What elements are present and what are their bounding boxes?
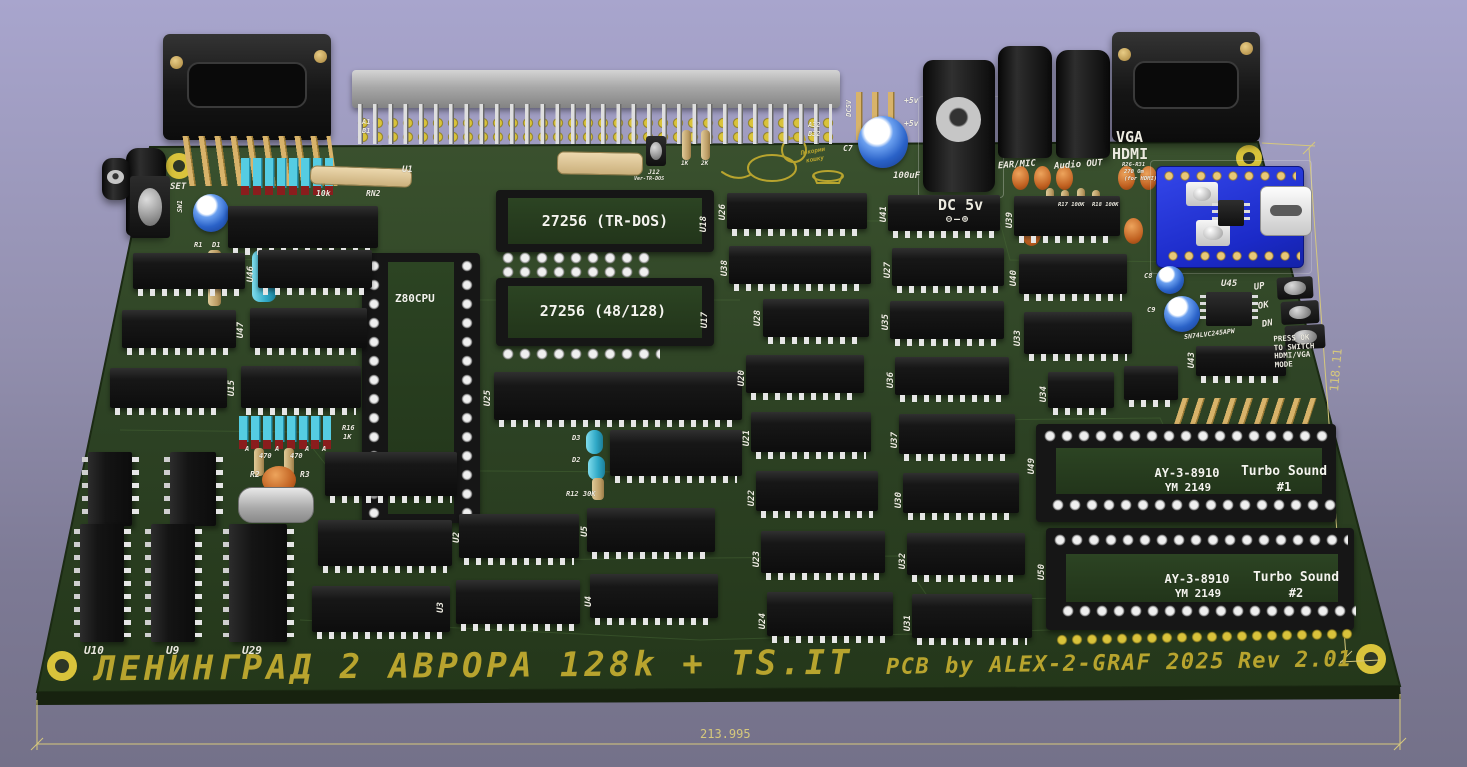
capacitor-c7 [858, 116, 908, 168]
plus5v-label: +5v [904, 96, 918, 105]
dip-chip-u29 [229, 524, 287, 642]
resistor-network-rn2 [310, 165, 413, 188]
pad-a-label: A [322, 445, 326, 453]
resistor-1k [682, 130, 691, 160]
c7-ref-label: C7 [843, 144, 853, 153]
j12-note-label: Ver-TR-DOS [634, 176, 664, 182]
dip-chip [122, 310, 236, 348]
r17-label: R17 100K [1058, 202, 1085, 208]
u41-ref-label: U41 [879, 206, 889, 222]
u49-ref-label: U49 [1027, 458, 1037, 474]
ok-label: OK [1257, 300, 1269, 312]
r2-label: R2 [250, 470, 260, 479]
u23-ref-label: U23 [752, 551, 762, 567]
z80-socket-pins [459, 258, 476, 518]
set-label: SET [170, 182, 186, 192]
mode-switch-note: PRESS OK TO SWITCH HDMI/VGA MODE [1273, 333, 1329, 370]
socket-pin-row [500, 264, 650, 278]
orange-capacitor [1034, 166, 1051, 190]
pad-a-label: A [305, 445, 309, 453]
vga-hex-nut [1240, 42, 1253, 55]
dip-chip [250, 308, 367, 348]
dip-chip [590, 574, 718, 618]
dip-chip-u5 [587, 508, 715, 552]
edge-label-a32: A32 [808, 121, 821, 129]
z80cpu-label: Z80CPU [395, 292, 435, 305]
edge-label-b1: B1 [362, 127, 370, 135]
dip-chip-u35 [890, 301, 1004, 339]
dip-chip-vertical [88, 452, 132, 526]
dc5v-jack-label: DC 5v [938, 196, 983, 214]
dn-label: DN [1261, 318, 1273, 330]
turbo-sound-1-label: Turbo Sound [1236, 464, 1332, 479]
u30-ref-label: U30 [894, 492, 904, 508]
dip-chip-u2 [318, 520, 452, 566]
u38-ref-label: U38 [720, 260, 730, 276]
module-pads [1166, 249, 1300, 264]
dip-chip-u38 [729, 246, 871, 284]
diode-d3 [586, 430, 603, 454]
rom2-label: 27256 (48/128) [503, 302, 703, 320]
vga-note-1: R26-R31 [1122, 162, 1145, 168]
r-2k-label: 2K [701, 160, 708, 167]
u33-ref-label: U33 [1013, 330, 1023, 346]
u22-ref-label: U22 [747, 490, 757, 506]
d2-label: D2 [572, 456, 580, 464]
j12-ref-label: J12 [648, 168, 660, 176]
electrolytic-capacitor [193, 194, 229, 232]
dip-chip-u3 [312, 586, 450, 632]
vga-note-3: (for HDMI) [1124, 176, 1157, 182]
u40-ref-label: U40 [1009, 270, 1019, 286]
u31-ref-label: U31 [903, 615, 913, 631]
dc-barrel-jack [923, 60, 995, 192]
resistor-2k [701, 130, 710, 160]
dip-chip-u27 [892, 248, 1004, 286]
vga-label: VGA [1116, 128, 1143, 146]
socket-pin-row [1042, 428, 1330, 445]
dip-chip-u28 [763, 299, 869, 337]
d3-label: D3 [572, 434, 580, 442]
board-revision: Rev 2.01 [1238, 647, 1352, 674]
polarity-symbol: ⊖–⊕ [946, 214, 970, 225]
sw1-label: SW1 [176, 200, 184, 213]
hdmi-label: HDMI [1112, 145, 1148, 163]
jumper-j12 [646, 136, 666, 166]
dip-chip [610, 430, 742, 476]
dip-chip [110, 368, 227, 408]
diode-d2 [588, 456, 605, 480]
plus5v-label: +5v [904, 119, 918, 128]
dip-chip-u26 [727, 193, 867, 229]
db9-hex-nut [170, 56, 183, 69]
socket-pin-row [1050, 497, 1340, 515]
dip-chip-u20 [746, 355, 864, 393]
r3-label: R3 [300, 470, 310, 479]
rn2-ref-label: RN2 [366, 189, 380, 198]
ay2-name-label: AY-3-8910 [1146, 572, 1248, 586]
vga-hex-nut [1118, 48, 1131, 61]
capacitor-c8 [1156, 266, 1184, 294]
dc5v-header-label: DC5V [845, 100, 853, 117]
ok-button [1280, 300, 1319, 325]
u5-ref-label: U5 [580, 526, 590, 537]
db9-hex-nut [314, 50, 327, 63]
r16-label: R16 [342, 424, 355, 432]
c9-label: C9 [1147, 306, 1155, 314]
ay1-sub-label: YM 2149 [1140, 481, 1236, 494]
usb-c-connector [1260, 186, 1312, 236]
socket-pin-row [1052, 532, 1348, 550]
module-pads [1162, 169, 1296, 184]
db9-joystick-connector [163, 34, 331, 140]
c7-value-label: 100uF [893, 171, 920, 181]
u32-ref-label: U32 [898, 553, 908, 569]
u43-ref-label: U43 [1187, 352, 1197, 368]
orange-capacitor [1124, 218, 1143, 244]
r1-label: R1 [194, 241, 202, 249]
dip-chip-u23 [761, 531, 885, 573]
module-ic [1218, 200, 1244, 226]
u24-ref-label: U24 [758, 613, 768, 629]
ay2-sub-label: YM 2149 [1150, 587, 1246, 600]
resistor-network [557, 151, 643, 175]
u35-ref-label: U35 [881, 314, 891, 330]
r-1k-label: 1K [681, 160, 688, 167]
dip-chip-u33 [1024, 312, 1132, 354]
rom1-label: 27256 (TR-DOS) [505, 212, 705, 230]
c8-label: C8 [1144, 272, 1152, 280]
dip-chip-u37 [899, 414, 1015, 454]
vga-connector [1112, 32, 1260, 142]
u34-ref-label: U34 [1039, 386, 1049, 402]
turbo-sound-1-num: #1 [1240, 480, 1328, 494]
angled-pin-header [1173, 398, 1316, 426]
up-button [1276, 276, 1313, 300]
dip-chip-u30 [903, 473, 1019, 513]
dip-chip-u34 [1048, 372, 1114, 408]
dip-chip-u36 [895, 357, 1009, 395]
d1-label: D1 [212, 241, 220, 249]
pad-a-label: A [275, 445, 279, 453]
dip-chip-u43 [1196, 346, 1286, 376]
dip-chip-u21 [751, 412, 871, 452]
vga-note-2: 270 Om [1124, 169, 1144, 175]
u25-ref-label: U25 [483, 390, 493, 406]
pcb-3d-viewport[interactable]: 213.995 118.11 A1 B1 A32 B32 DC5V +5v +5… [0, 0, 1467, 767]
reset-switch [130, 176, 170, 238]
u15-ref-label: U15 [227, 380, 237, 396]
dip-chip [1124, 366, 1178, 400]
ay1-name-label: AY-3-8910 [1136, 466, 1238, 480]
r18-label: R18 100K [1092, 202, 1119, 208]
r470-label: 470 [290, 452, 303, 460]
u36-ref-label: U36 [886, 372, 896, 388]
u37-ref-label: U37 [890, 432, 900, 448]
u47-ref-label: U47 [236, 322, 246, 338]
u4-ref-label: U4 [584, 596, 594, 607]
r12-label: R12 30K [566, 490, 596, 498]
edge-label-b32: B32 [808, 130, 821, 138]
dimension-height-label: 118.11 [1327, 348, 1345, 392]
pad-a-label: A [245, 445, 249, 453]
u50-ref-label: U50 [1037, 564, 1047, 580]
u27-ref-label: U27 [883, 262, 893, 278]
ceramic-capacitor-row [239, 416, 331, 442]
zx-bus-edge-connector [352, 70, 840, 108]
r16-value-label: 1K [343, 433, 351, 441]
audio-out-jack [1056, 50, 1110, 158]
dip-chip [459, 514, 579, 558]
u21-ref-label: U21 [742, 430, 752, 446]
u45-ref-label: U45 [1221, 279, 1237, 289]
u46-ref-label: U46 [246, 266, 256, 282]
dip-chip [133, 253, 245, 289]
dip-chip-u1 [228, 206, 378, 248]
dip-chip-u24 [767, 592, 893, 636]
dip-chip [258, 250, 372, 288]
socket-pin-row [1060, 603, 1356, 621]
dip-chip-u32 [907, 533, 1025, 575]
u18-ref-label: U18 [699, 216, 709, 232]
board-title: ЛЕНИНГРАД 2 АВРОРА 128k + TS.IT [95, 643, 854, 690]
u39-ref-label: U39 [1005, 212, 1015, 228]
dip-chip-u31 [912, 594, 1032, 638]
socket-pin-row [500, 250, 650, 264]
u17-ref-label: U17 [700, 312, 710, 328]
r470-label: 470 [259, 452, 272, 460]
capacitor-c9 [1164, 296, 1200, 332]
u2-ref-label: U2 [452, 532, 462, 543]
turbo-sound-2-num: #2 [1252, 586, 1340, 600]
dip-chip-u9 [151, 524, 195, 642]
dip-chip-u25 [494, 372, 742, 420]
dip-chip-u10 [80, 524, 124, 642]
u26-ref-label: U26 [718, 204, 728, 220]
ear-mic-jack [998, 46, 1052, 158]
rn2-value-label: 10k [316, 189, 330, 198]
edge-label-a1: A1 [362, 118, 370, 126]
dimension-width-label: 213.995 [700, 727, 751, 741]
u20-ref-label: U20 [737, 370, 747, 386]
u1-ref-label: U1 [402, 165, 413, 175]
crystal-oscillator [238, 487, 314, 523]
dip-chip-vertical [170, 452, 216, 526]
dip-chip [241, 366, 361, 408]
up-label: UP [1253, 281, 1265, 293]
side-jack-barrel [102, 158, 130, 200]
dip-chip-u40 [1019, 254, 1127, 294]
dip-chip [325, 452, 457, 496]
edge-connector-pins [358, 104, 832, 144]
dip-chip-u22 [756, 471, 878, 511]
socket-pin-row [500, 346, 660, 360]
dip-chip-u4 [456, 580, 580, 624]
u3-ref-label: U3 [436, 602, 446, 613]
soic-chip-u45 [1206, 292, 1252, 326]
u28-ref-label: U28 [753, 310, 763, 326]
turbo-sound-2-label: Turbo Sound [1248, 570, 1344, 585]
